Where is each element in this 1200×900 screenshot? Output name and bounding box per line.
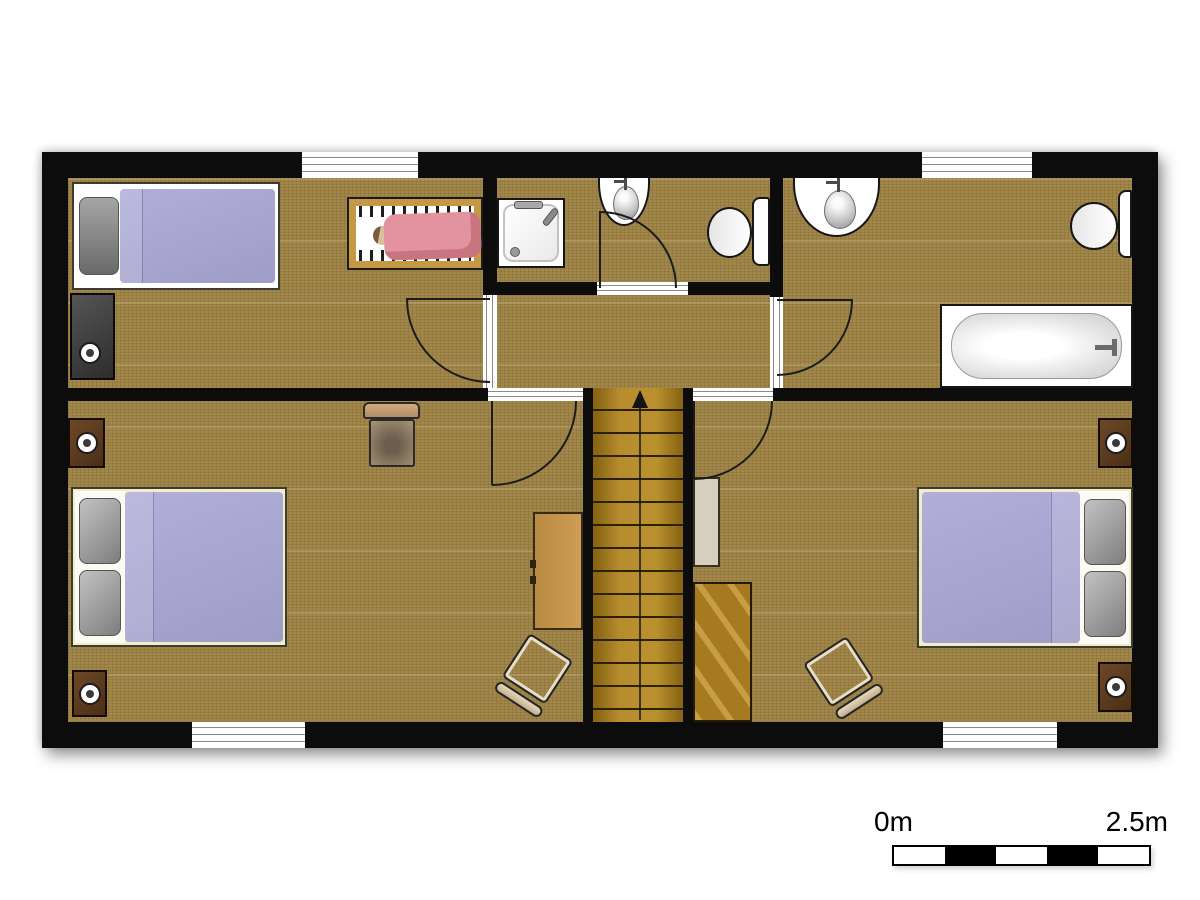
bath-faucet-icon: [1112, 339, 1117, 356]
nightstand: [1098, 662, 1133, 712]
double-bed-left: [71, 487, 287, 647]
scale-bar: [892, 845, 1151, 866]
nightstand-knob: [76, 432, 98, 454]
toilet-bowl-bathroom: [1070, 202, 1118, 250]
pillow: [79, 197, 119, 275]
pillow: [79, 498, 121, 564]
bathtub: [940, 304, 1133, 388]
pillow: [1084, 571, 1126, 637]
nightstand-knob: [79, 683, 101, 705]
wall-mid-horizontal-left: [68, 388, 488, 401]
faucet-handle-icon: [826, 181, 839, 184]
wall-shower-room-bottom-left: [483, 282, 597, 295]
double-bed-right: [917, 487, 1133, 648]
chair-seat: [369, 419, 415, 467]
scale-segment: [894, 847, 945, 864]
staircase: [593, 388, 683, 722]
window-top-left: [302, 152, 418, 178]
toilet-bowl-shower-room: [707, 207, 752, 258]
shower-tray: [497, 198, 565, 268]
window-bottom-right: [943, 722, 1057, 748]
doorway-shower-room: [597, 282, 688, 295]
doorway-nursery: [483, 295, 497, 388]
pillow: [79, 570, 121, 636]
doorway-bedroom-right: [693, 388, 773, 401]
doorway-bedroom-left: [488, 388, 583, 401]
duvet-fold: [120, 189, 143, 283]
scale-segment: [945, 847, 996, 864]
crib: [347, 197, 483, 270]
baby-blanket: [383, 211, 482, 260]
wall-nursery-hall: [483, 178, 497, 295]
page: { "scale_bar": { "start_label": "0m", "e…: [0, 0, 1200, 900]
window-top-right: [922, 152, 1032, 178]
duvet: [922, 492, 1080, 643]
scale-segment: [1098, 847, 1149, 864]
pillow-zone: [75, 491, 125, 643]
single-bed: [72, 182, 280, 290]
chair-backrest: [363, 402, 420, 419]
floor-plan: [42, 152, 1158, 748]
scale-start-label: 0m: [874, 806, 913, 838]
wall-stairwell-right: [683, 388, 693, 722]
wardrobe: [693, 477, 720, 567]
sink-basin: [613, 186, 639, 220]
duvet: [120, 189, 275, 283]
scale-segment: [996, 847, 1047, 864]
desk-handle: [530, 576, 536, 584]
toilet-tank-bathroom: [1118, 190, 1132, 258]
wood-desk: [693, 582, 752, 722]
dresser-desk: [533, 512, 583, 630]
toilet-tank-shower-room: [752, 197, 770, 266]
duvet-fold: [125, 492, 154, 642]
shower-rail: [514, 201, 543, 209]
wall-bathroom-hall: [770, 178, 783, 297]
wall-stairwell-left: [583, 388, 593, 722]
nightstand: [68, 418, 105, 468]
nightstand-knob: [1105, 676, 1127, 698]
duvet: [125, 492, 283, 642]
pillow-zone: [1079, 491, 1129, 644]
shower-drain: [510, 247, 520, 257]
nightstand: [1098, 418, 1133, 468]
nightstand: [72, 670, 107, 717]
window-bottom-left: [192, 722, 305, 748]
dresser-knob: [79, 342, 101, 364]
wall-shower-room-bottom-right: [688, 282, 783, 295]
dark-dresser: [70, 293, 115, 380]
faucet-handle-icon: [614, 180, 626, 183]
duvet-fold: [1051, 492, 1080, 643]
pillow: [1084, 499, 1126, 565]
desk-handle: [530, 560, 536, 568]
scale-end-label: 2.5m: [1080, 806, 1168, 838]
sink-basin: [824, 190, 856, 229]
nightstand-knob: [1105, 432, 1127, 454]
scale-segment: [1047, 847, 1098, 864]
doorway-bathroom: [770, 297, 783, 388]
wall-mid-horizontal-right: [773, 388, 1132, 401]
